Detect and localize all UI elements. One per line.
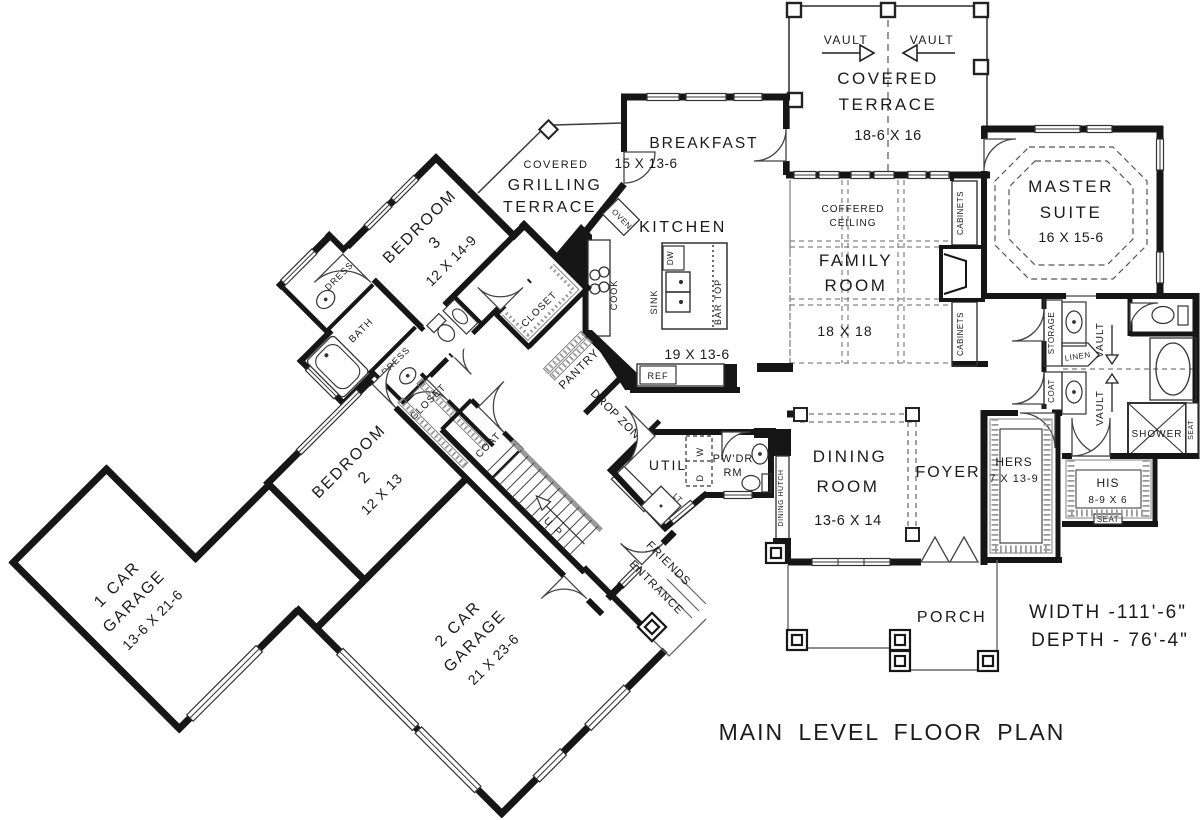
svg-text:SEAT: SEAT — [1188, 420, 1195, 440]
svg-text:STORAGE: STORAGE — [1047, 312, 1056, 354]
svg-text:CABINETS: CABINETS — [956, 191, 965, 235]
svg-text:COFFERED: COFFERED — [822, 204, 885, 215]
svg-text:COVERED: COVERED — [837, 69, 939, 88]
svg-text:DINING HUTCH: DINING HUTCH — [778, 470, 785, 527]
svg-text:TERRACE: TERRACE — [839, 95, 938, 114]
svg-text:CEILING: CEILING — [829, 218, 876, 229]
svg-text:SEAT: SEAT — [1097, 515, 1119, 524]
svg-text:SHOWER: SHOWER — [1132, 429, 1183, 440]
svg-text:WIDTH -111'-6": WIDTH -111'-6" — [1029, 602, 1187, 623]
svg-text:7 X 13-9: 7 X 13-9 — [989, 473, 1039, 485]
svg-text:ROOM: ROOM — [825, 276, 888, 295]
svg-text:CABINETS: CABINETS — [956, 312, 965, 356]
svg-text:VAULT: VAULT — [1095, 322, 1106, 358]
svg-text:BREAKFAST: BREAKFAST — [649, 135, 758, 152]
svg-text:SUITE: SUITE — [1040, 203, 1103, 222]
svg-text:SINK: SINK — [649, 289, 659, 314]
svg-text:HIS: HIS — [1096, 476, 1119, 490]
svg-text:COAT: COAT — [1047, 379, 1056, 403]
svg-text:COOK: COOK — [609, 280, 619, 311]
svg-text:18 X 18: 18 X 18 — [817, 323, 872, 339]
svg-text:15 X 13-6: 15 X 13-6 — [614, 156, 677, 171]
svg-text:REF: REF — [648, 371, 669, 381]
svg-text:DEPTH - 76'-4": DEPTH - 76'-4" — [1031, 630, 1189, 651]
svg-text:UTIL: UTIL — [649, 457, 687, 473]
svg-text:PORCH: PORCH — [917, 609, 987, 626]
svg-text:FAMILY: FAMILY — [819, 251, 893, 270]
svg-text:RM: RM — [723, 467, 742, 479]
svg-text:W: W — [695, 448, 705, 457]
svg-text:VAULT: VAULT — [824, 33, 868, 47]
svg-text:18-6 X 16: 18-6 X 16 — [854, 128, 921, 144]
svg-text:16 X 15-6: 16 X 15-6 — [1038, 229, 1103, 245]
svg-text:HERS: HERS — [995, 455, 1032, 469]
svg-text:13-6 X 14: 13-6 X 14 — [814, 513, 881, 529]
svg-text:KITCHEN: KITCHEN — [639, 219, 727, 236]
svg-text:MAIN LEVEL FLOOR PLAN: MAIN LEVEL FLOOR PLAN — [719, 719, 1066, 745]
svg-text:D: D — [695, 475, 705, 482]
svg-text:FOYER: FOYER — [915, 464, 980, 481]
svg-text:DW: DW — [666, 251, 675, 265]
svg-text:GRILLING: GRILLING — [508, 177, 603, 194]
svg-text:MASTER: MASTER — [1028, 177, 1114, 196]
svg-text:VAULT: VAULT — [1095, 390, 1106, 426]
svg-text:19 X 13-6: 19 X 13-6 — [664, 346, 729, 362]
svg-text:ROOM: ROOM — [817, 477, 880, 496]
svg-text:BAR TOP: BAR TOP — [713, 279, 723, 325]
svg-text:COVERED: COVERED — [524, 159, 589, 171]
svg-text:TERRACE: TERRACE — [503, 199, 597, 216]
svg-text:8-9 X 6: 8-9 X 6 — [1088, 495, 1127, 506]
svg-text:PW'DR: PW'DR — [713, 453, 754, 465]
svg-text:DINING: DINING — [813, 447, 888, 466]
